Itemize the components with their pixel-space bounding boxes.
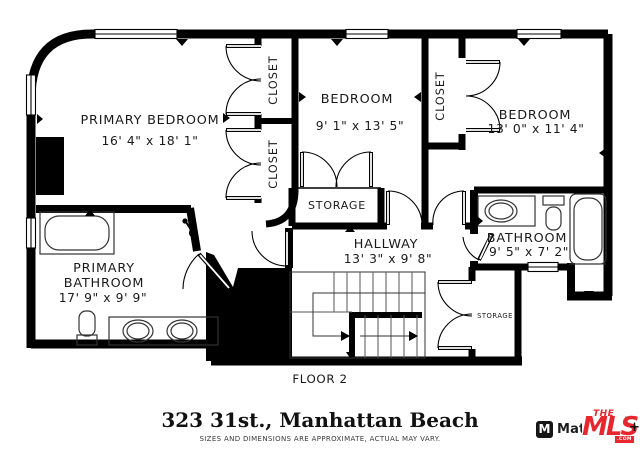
marker-down: [176, 39, 188, 46]
stair-core-mass: [206, 252, 292, 361]
storage-mid-label: STORAGE: [308, 199, 366, 212]
bedroom-right-label: BEDROOM: [499, 108, 571, 123]
marker-down: [331, 39, 343, 46]
window: [517, 30, 561, 39]
closet-top-label: CLOSET: [267, 55, 280, 104]
door-arc: [438, 314, 472, 348]
door-arc: [226, 46, 261, 81]
marker-right: [299, 92, 306, 102]
primary-bedroom-label: PRIMARY BEDROOM: [81, 113, 220, 128]
bedroom-right-dims: 13' 0" x 11' 4": [488, 122, 585, 136]
door-arc: [433, 191, 464, 225]
door-arc: [226, 163, 261, 198]
vanity-bathroom: [478, 196, 535, 226]
primary-bathroom-label-1: PRIMARY: [73, 261, 135, 276]
door-arc: [388, 191, 422, 225]
matterport-icon-glyph: M: [536, 421, 553, 438]
bathroom-dims: 9' 5" x 7' 2": [489, 245, 569, 259]
door-arc: [226, 130, 261, 165]
themls-com-badge: .COM: [615, 436, 634, 443]
door-arc: [252, 231, 287, 266]
marker-right: [477, 216, 483, 226]
wall-masses: [36, 137, 292, 361]
primary-bathroom-label-2: BATHROOM: [64, 276, 144, 291]
marker-left: [414, 92, 421, 102]
floor-label: FLOOR 2: [292, 372, 347, 386]
bathtub-primary: [40, 212, 114, 254]
bathroom-label: BATHROOM: [487, 231, 567, 246]
door-arc: [302, 152, 337, 187]
floorplan-drawing: PRIMARY BEDROOM 16' 4" x 18' 1" BEDROOM …: [0, 0, 640, 400]
window: [27, 75, 36, 115]
door-arc: [438, 282, 472, 316]
stair-direction-arrow: [341, 331, 350, 341]
primary-bedroom-dims: 16' 4" x 18' 1": [102, 134, 199, 148]
floorplan-page: PRIMARY BEDROOM 16' 4" x 18' 1" BEDROOM …: [0, 0, 640, 453]
closet-mid-label: CLOSET: [267, 139, 280, 188]
window: [27, 218, 36, 248]
marker-right: [37, 114, 43, 124]
door-arc: [463, 237, 479, 260]
hallway-label: HALLWAY: [354, 237, 419, 252]
chimney-block: [36, 137, 64, 195]
toilet-bathroom: [543, 196, 564, 230]
window: [95, 30, 177, 39]
door-arc: [466, 62, 500, 96]
storage-right-label: STORAGE: [477, 312, 513, 320]
themls-logo: THE MLS ™ .COM +: [582, 408, 640, 448]
primary-bathroom-dims: 17' 9" x 9' 9": [59, 291, 148, 305]
window: [528, 263, 558, 272]
matterport-icon: M: [536, 421, 553, 438]
bathtub-bathroom: [569, 194, 606, 264]
door-arc: [336, 152, 371, 187]
marker-down: [518, 39, 530, 46]
door-arc: [226, 79, 261, 114]
marker-left: [599, 148, 606, 158]
bedroom-mid-label: BEDROOM: [321, 92, 393, 107]
window: [346, 30, 388, 39]
door-arc: [183, 254, 199, 289]
hallway-dims: 13' 3" x 9' 8": [344, 252, 433, 266]
themls-plus: +: [629, 420, 640, 435]
bedroom-mid-dims: 9' 1" x 13' 5": [316, 119, 405, 133]
closet-right-label: CLOSET: [434, 71, 447, 120]
